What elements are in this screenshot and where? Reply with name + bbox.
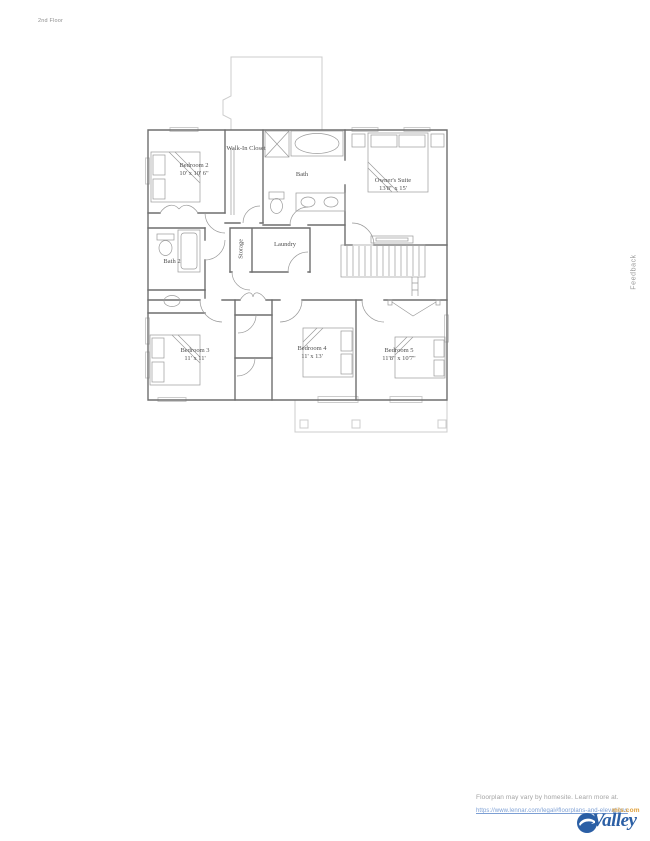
bed-icon-bedroom3: [150, 335, 200, 385]
walls-layer: [148, 130, 447, 400]
wall: [148, 290, 205, 313]
door-arc: [237, 358, 255, 376]
nightstand: [431, 134, 444, 147]
sink-icon: [164, 296, 180, 307]
floor-label: 2nd Floor: [38, 18, 63, 24]
porch-post: [300, 420, 308, 428]
porch-outline: [295, 400, 447, 432]
wall: [235, 315, 272, 358]
porch-post: [352, 420, 360, 428]
linen-shelf-inner: [376, 238, 408, 241]
feedback-tab[interactable]: Feedback: [631, 254, 638, 290]
door-jamb: [436, 300, 440, 305]
door-arc: [362, 300, 384, 322]
staircase: [341, 236, 425, 296]
door-arc: [232, 272, 250, 290]
closet-bifold-doors: [392, 302, 436, 316]
door-arc: [238, 315, 256, 333]
toilet-icon: [157, 234, 174, 256]
wall: [230, 228, 310, 272]
door-arc: [290, 207, 308, 225]
fixtures-layer: [150, 131, 445, 385]
valleymls-logo: Valley mls.com: [576, 810, 650, 838]
bed-icon-bedroom5: [395, 337, 445, 378]
door-arc: [205, 240, 225, 260]
footer: Floorplan may vary by homesite. Learn mo…: [476, 794, 646, 814]
bed-icon-bedroom4: [303, 328, 353, 377]
closet-shelf-lines: [231, 148, 234, 215]
door-arc: [205, 213, 225, 233]
stair-treads: [347, 246, 419, 276]
door-arc: [200, 300, 222, 322]
roof-outline: [223, 57, 322, 130]
exterior-walls: [148, 130, 447, 400]
door-jamb: [388, 300, 392, 305]
stair-landing: [412, 277, 418, 296]
valleymls-logo-suffix: mls.com: [612, 807, 640, 814]
door-arc: [280, 300, 302, 322]
porch-post: [438, 420, 446, 428]
door-arc: [243, 206, 260, 223]
double-vanity-icon: [296, 193, 345, 211]
nightstand: [352, 134, 365, 147]
toilet-icon: [269, 192, 284, 214]
page: 2nd Floor: [0, 0, 650, 841]
bathtub-icon: [178, 230, 200, 272]
shower-icon: [265, 131, 289, 157]
linen-shelf: [371, 236, 413, 243]
closet-arch-doors: [160, 205, 198, 213]
floorplan-drawing: [140, 50, 452, 440]
floorplan: Bedroom 2 10' x 10' 6" Walk-In Closet Ba…: [140, 50, 452, 440]
bed-icon-owners-suite: [352, 133, 444, 192]
closet-arch-doors: [240, 293, 266, 300]
bathtub-icon: [291, 131, 343, 156]
disclaimer-text: Floorplan may vary by homesite. Learn mo…: [476, 794, 646, 801]
bed-icon-bedroom2: [151, 152, 200, 202]
door-arc: [288, 252, 308, 272]
